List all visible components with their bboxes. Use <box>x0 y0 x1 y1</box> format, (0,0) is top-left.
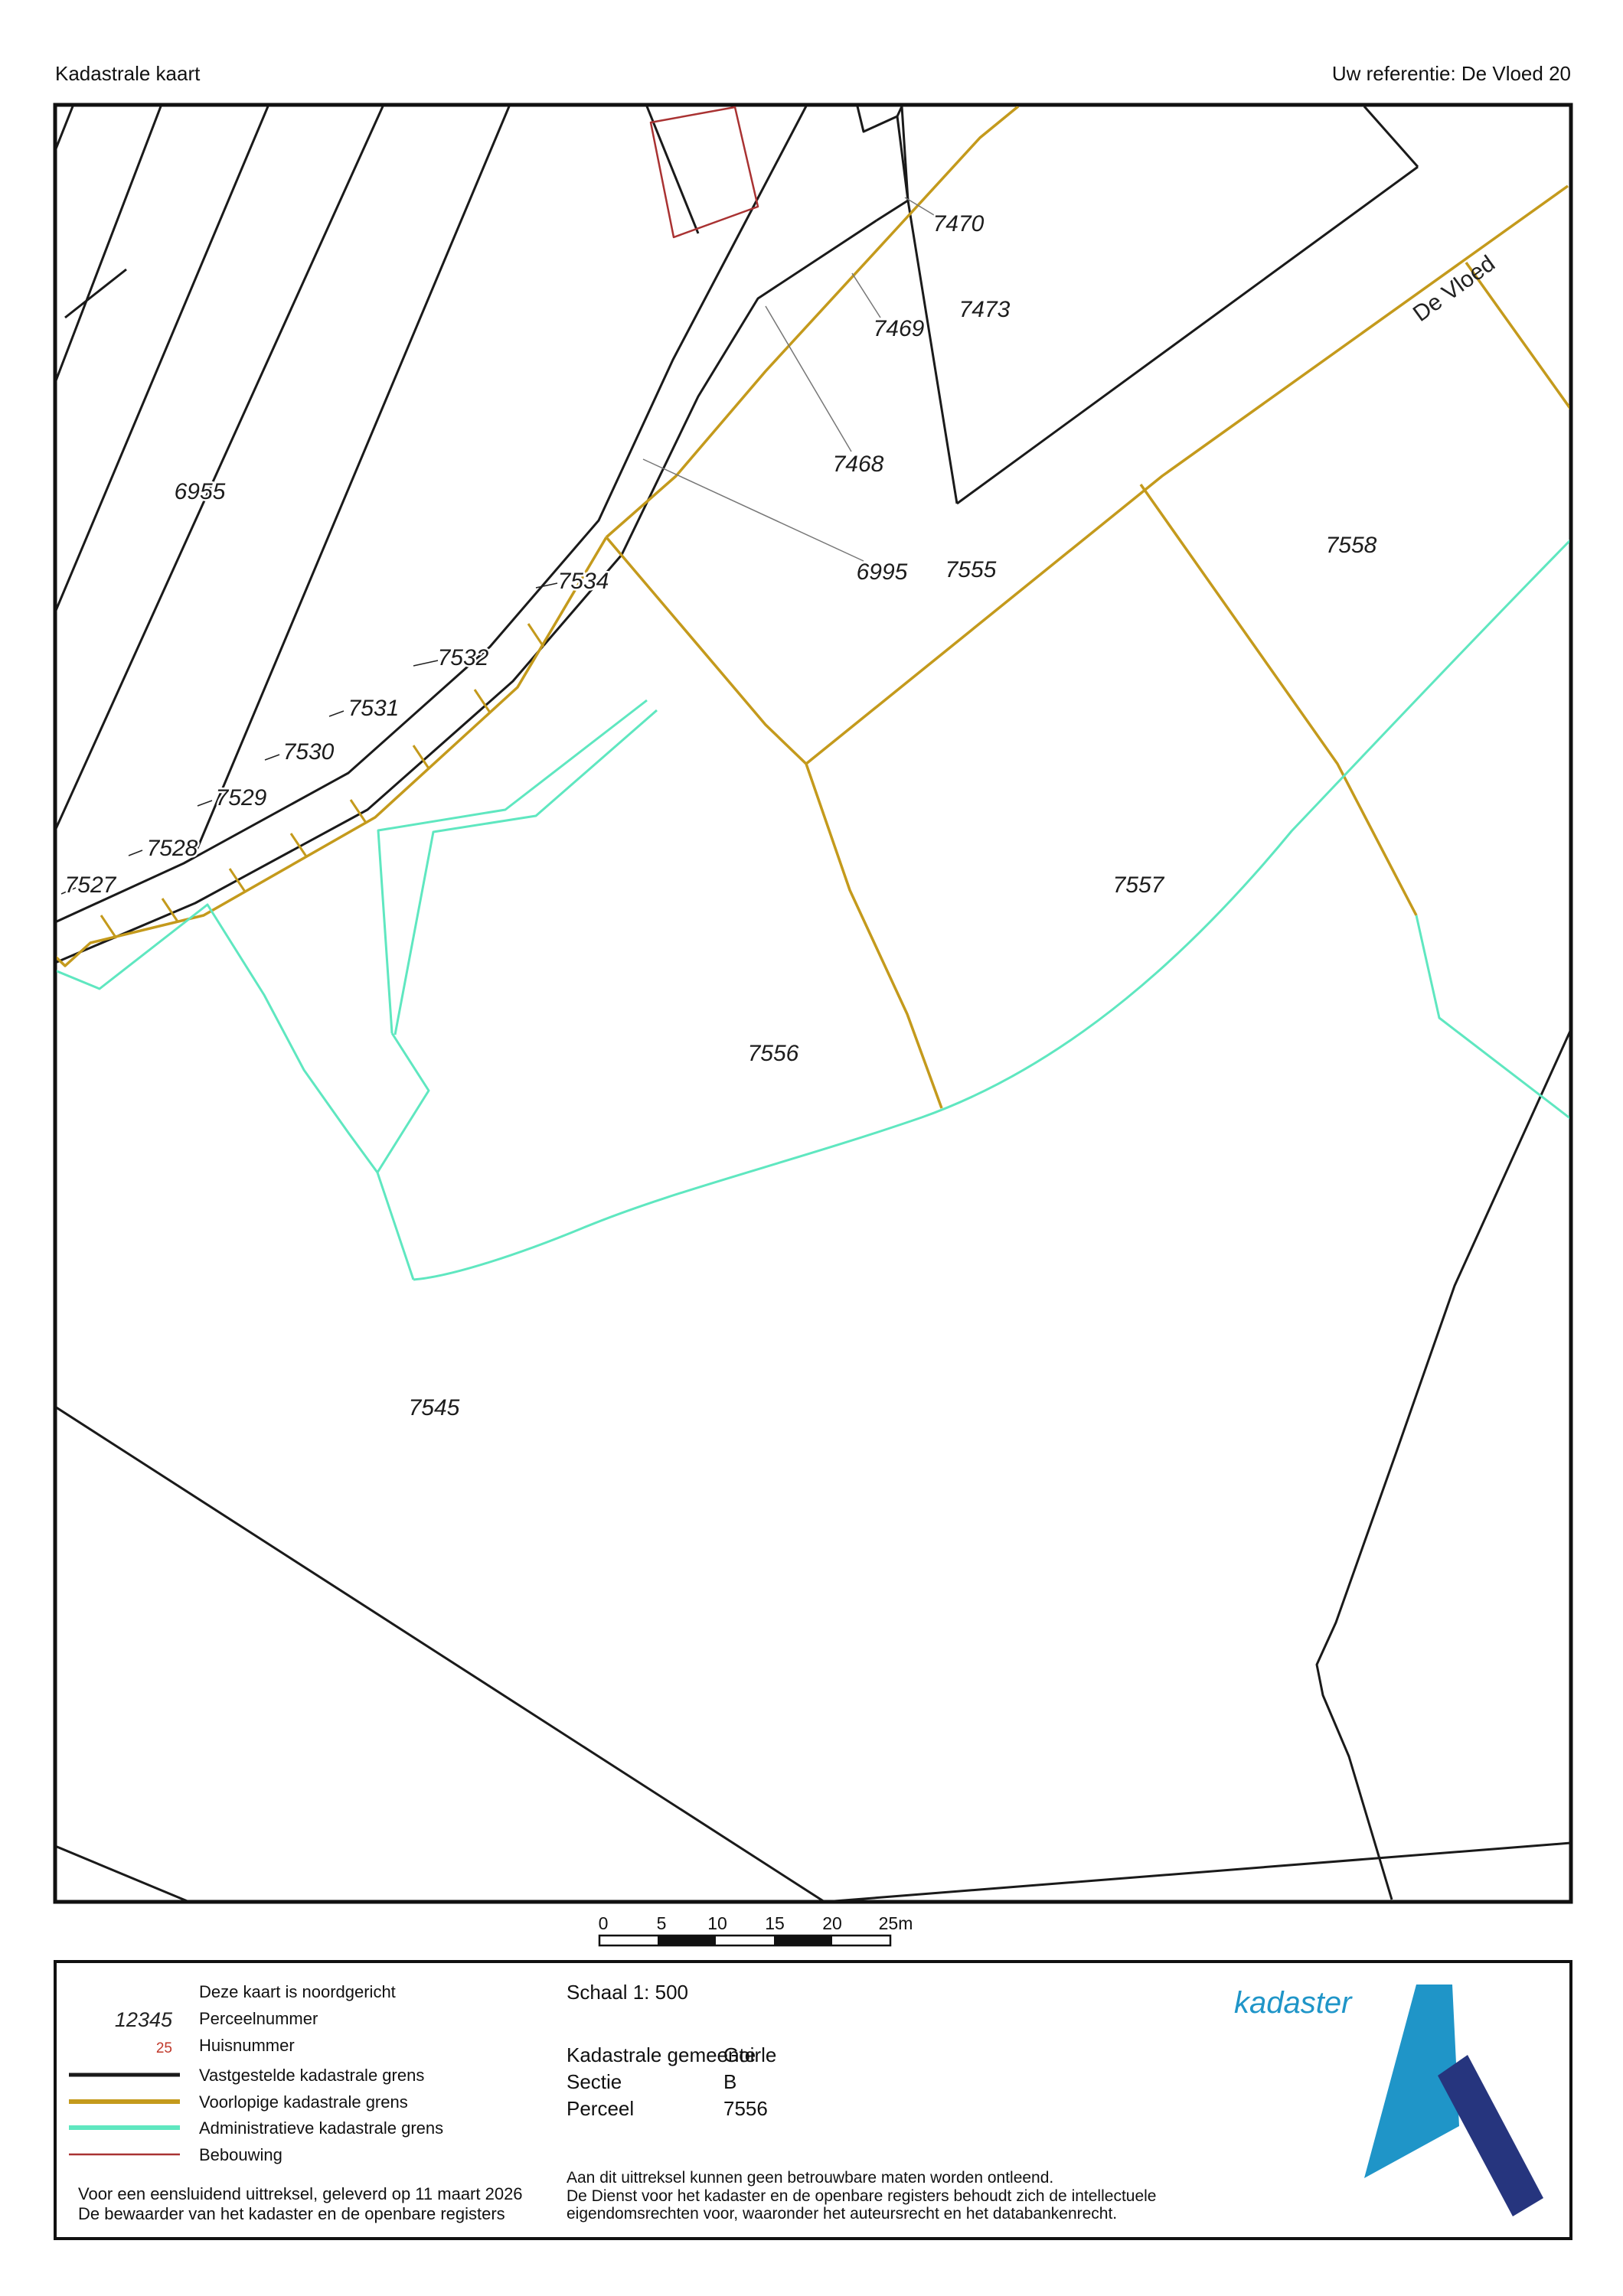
legend-label-building: Bebouwing <box>199 2145 282 2164</box>
parcel-label-7557: 7557 <box>1113 872 1165 898</box>
info-value-perceel: 7556 <box>723 2097 768 2120</box>
building-outline <box>651 107 758 237</box>
scale-tick-0: 0 <box>599 1913 609 1933</box>
legend-sample-huisnummer: 25 <box>156 2040 172 2056</box>
parcel-labels: 6955 7527 7528 7529 7530 7531 7532 7534 … <box>65 211 1500 1420</box>
scale-tick-10: 10 <box>707 1913 727 1933</box>
page-title: Kadastrale kaart <box>55 62 201 85</box>
legend: Deze kaart is noordgericht 12345 Perceel… <box>69 1982 523 2223</box>
cadastral-map-svg: Kadastrale kaart Uw referentie: De Vloed… <box>0 0 1623 2296</box>
scale-bar-segment <box>658 1936 716 1945</box>
parcel-label-7470: 7470 <box>933 211 985 236</box>
administrative-boundary-lines <box>55 540 1571 1280</box>
map-border <box>55 105 1571 1902</box>
parcel-label-7530: 7530 <box>283 739 335 765</box>
scale-label: Schaal 1: 500 <box>567 1981 688 2004</box>
scale-tick-20: 20 <box>822 1913 842 1933</box>
legend-label-provisional: Voorlopige kadastrale grens <box>199 2092 408 2112</box>
reference-label: Uw referentie: De Vloed 20 <box>1332 62 1571 85</box>
parcel-label-7545: 7545 <box>409 1395 460 1420</box>
label-leader-lines <box>61 197 938 894</box>
disclaimer-line1: Aan dit uittreksel kunnen geen betrouwba… <box>567 2169 1053 2187</box>
info-value-sectie: B <box>723 2070 736 2093</box>
kadaster-logo: kadaster <box>1234 1985 1543 2216</box>
provisional-boundary-lines <box>46 106 1571 1108</box>
info-block: Schaal 1: 500 Kadastrale gemeente Goirle… <box>567 1981 1156 2223</box>
info-label-perceel: Perceel <box>567 2097 634 2120</box>
parcel-label-7527: 7527 <box>65 872 117 898</box>
parcel-label-7555: 7555 <box>945 557 997 582</box>
disclaimer-line3: eigendomsrechten voor, waaronder het aut… <box>567 2205 1117 2223</box>
scale-tick-25m: 25m <box>879 1913 913 1933</box>
established-boundary-lines <box>55 102 1571 1902</box>
north-note: Deze kaart is noordgericht <box>199 1982 396 2001</box>
parcel-label-7558: 7558 <box>1326 533 1377 558</box>
info-label-sectie: Sectie <box>567 2070 622 2093</box>
scale-bar-outline <box>599 1936 890 1945</box>
info-value-gemeente: Goirle <box>723 2043 776 2066</box>
scale-bar-segment <box>774 1936 832 1945</box>
parcel-label-7528: 7528 <box>147 836 198 861</box>
parcel-7470-notch <box>857 106 908 220</box>
parcel-label-7529: 7529 <box>216 785 267 810</box>
kadaster-logo-text: kadaster <box>1234 1986 1353 2020</box>
scale-bar: 0 5 10 15 20 25m <box>599 1913 913 1945</box>
scale-tick-15: 15 <box>765 1913 785 1933</box>
parcel-label-7531: 7531 <box>348 696 400 721</box>
legend-label-huisnummer: Huisnummer <box>199 2036 295 2055</box>
parcel-label-7473: 7473 <box>959 297 1011 322</box>
cadastral-extract-page: Kadastrale kaart Uw referentie: De Vloed… <box>0 0 1623 2296</box>
scale-tick-5: 5 <box>657 1913 667 1933</box>
legend-footer-line2: De bewaarder van het kadaster en de open… <box>78 2204 505 2223</box>
legend-label-perceelnummer: Perceelnummer <box>199 2009 318 2028</box>
legend-sample-perceelnummer: 12345 <box>115 2008 173 2031</box>
legend-label-established: Vastgestelde kadastrale grens <box>199 2066 424 2085</box>
kadaster-logo-dark-stroke <box>1438 2055 1543 2216</box>
disclaimer-line2: De Dienst voor het kadaster en de openba… <box>567 2187 1156 2205</box>
parcel-label-7556: 7556 <box>748 1041 799 1066</box>
parcel-label-7534: 7534 <box>558 569 609 594</box>
parcel-label-7469: 7469 <box>874 316 925 341</box>
legend-label-administrative: Administratieve kadastrale grens <box>199 2118 443 2138</box>
parcel-label-7468: 7468 <box>833 452 884 477</box>
parcel-label-6955: 6955 <box>175 479 226 504</box>
legend-footer-line1: Voor een eensluidend uittreksel, gelever… <box>78 2184 523 2203</box>
parcel-label-7532: 7532 <box>438 645 489 670</box>
parcel-label-6995: 6995 <box>857 559 908 585</box>
